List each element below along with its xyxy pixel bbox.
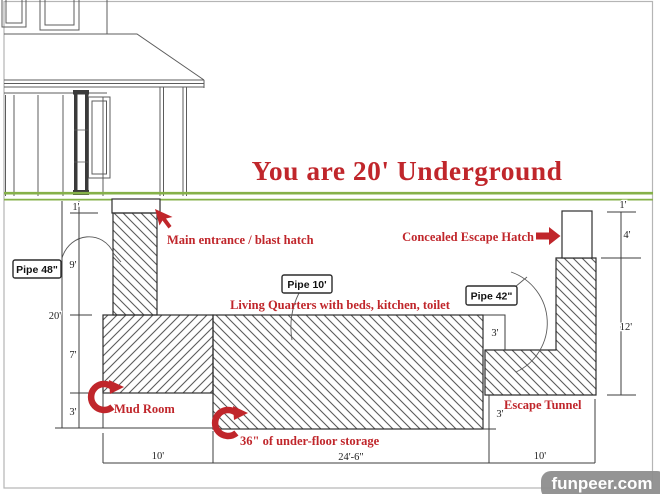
dim-step-3ft: 3' [491,328,498,339]
mud-room-block [103,315,213,393]
dim-left-7ft: 7' [69,350,76,361]
dim-right-12ft: 12' [620,322,633,333]
watermark: funpeer.com [541,471,660,494]
dim-bottom-10ft-right: 10' [534,451,547,462]
pipe10-label: Pipe 10' [287,279,326,291]
under-floor-storage-label: 36" of under-floor storage [240,434,380,448]
dim-bottom-10ft-left: 10' [152,451,165,462]
watermark-text: funpeer.com [551,474,652,493]
page-title: You are 20' Underground [252,155,563,186]
dim-right-4ft: 4' [623,230,630,241]
bunker-diagram: 1' 9' 20' 7' 3' 1' 4' 12' 3' 3' 10' 24'-… [0,0,660,494]
mud-room-label: Mud Room [114,402,175,416]
dim-left-1ft: 1' [72,202,79,213]
pipe42-label: Pipe 42" [471,291,513,303]
dim-left-3ft: 3' [69,407,76,418]
dim-left-9ft: 9' [69,260,76,271]
concealed-hatch-label: Concealed Escape Hatch [402,230,534,244]
living-quarters-block [213,315,483,429]
main-entrance-label: Main entrance / blast hatch [167,233,314,247]
escape-tunnel-label: Escape Tunnel [504,398,582,412]
living-quarters-label: Living Quarters with beds, kitchen, toil… [230,298,451,312]
diagram-canvas: 1' 9' 20' 7' 3' 1' 4' 12' 3' 3' 10' 24'-… [0,0,660,494]
dim-floor-3ft: 3' [496,409,503,420]
dim-bottom-24ft: 24'-6" [338,452,363,463]
pipe48-label: Pipe 48" [16,264,58,276]
escape-hatch-shaft [562,211,592,258]
blast-hatch-cap [112,199,160,213]
dim-left-20ft: 20' [49,311,62,322]
dim-right-1ft: 1' [619,200,626,211]
entrance-shaft [113,213,157,315]
